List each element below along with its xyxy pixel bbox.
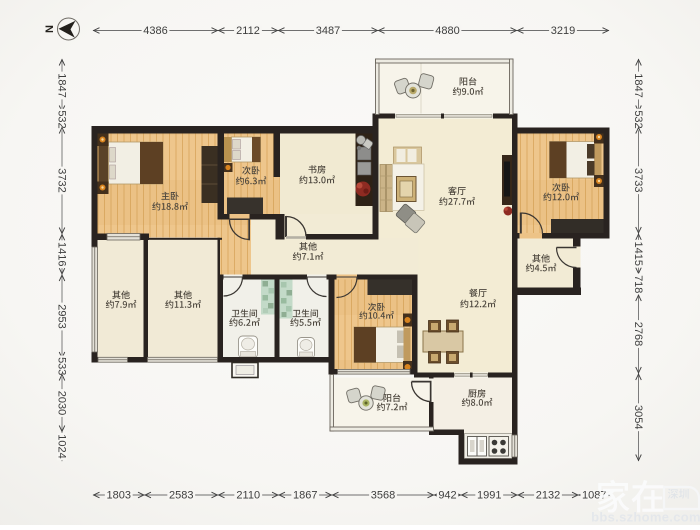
- svg-text:1803: 1803: [107, 489, 131, 501]
- svg-text:4880: 4880: [435, 25, 459, 37]
- svg-text:N: N: [44, 25, 56, 33]
- svg-text:1847: 1847: [632, 73, 644, 97]
- svg-text:bbs.szhome.com: bbs.szhome.com: [591, 510, 700, 525]
- svg-text:2768: 2768: [632, 322, 644, 346]
- svg-text:532: 532: [56, 110, 68, 128]
- svg-text:3219: 3219: [551, 25, 575, 37]
- svg-text:3732: 3732: [56, 168, 68, 192]
- svg-text:2030: 2030: [56, 391, 68, 415]
- svg-text:3487: 3487: [316, 25, 340, 37]
- svg-text:2112: 2112: [236, 25, 260, 37]
- svg-text:942: 942: [438, 489, 456, 501]
- svg-text:2583: 2583: [169, 489, 193, 501]
- svg-text:1991: 1991: [477, 489, 501, 501]
- svg-text:532: 532: [632, 110, 644, 128]
- svg-text:4386: 4386: [143, 25, 167, 37]
- svg-text:1867: 1867: [293, 489, 317, 501]
- svg-text:1024: 1024: [56, 434, 68, 458]
- svg-text:2132: 2132: [536, 489, 560, 501]
- svg-text:718: 718: [632, 275, 644, 293]
- svg-text:1415: 1415: [632, 242, 644, 266]
- svg-text:3054: 3054: [632, 405, 644, 429]
- svg-text:1847: 1847: [56, 73, 68, 97]
- svg-text:3733: 3733: [632, 168, 644, 192]
- svg-text:2953: 2953: [56, 304, 68, 328]
- svg-text:2110: 2110: [236, 489, 260, 501]
- svg-text:533: 533: [56, 357, 68, 375]
- svg-text:3568: 3568: [371, 489, 395, 501]
- svg-text:1416: 1416: [56, 242, 68, 266]
